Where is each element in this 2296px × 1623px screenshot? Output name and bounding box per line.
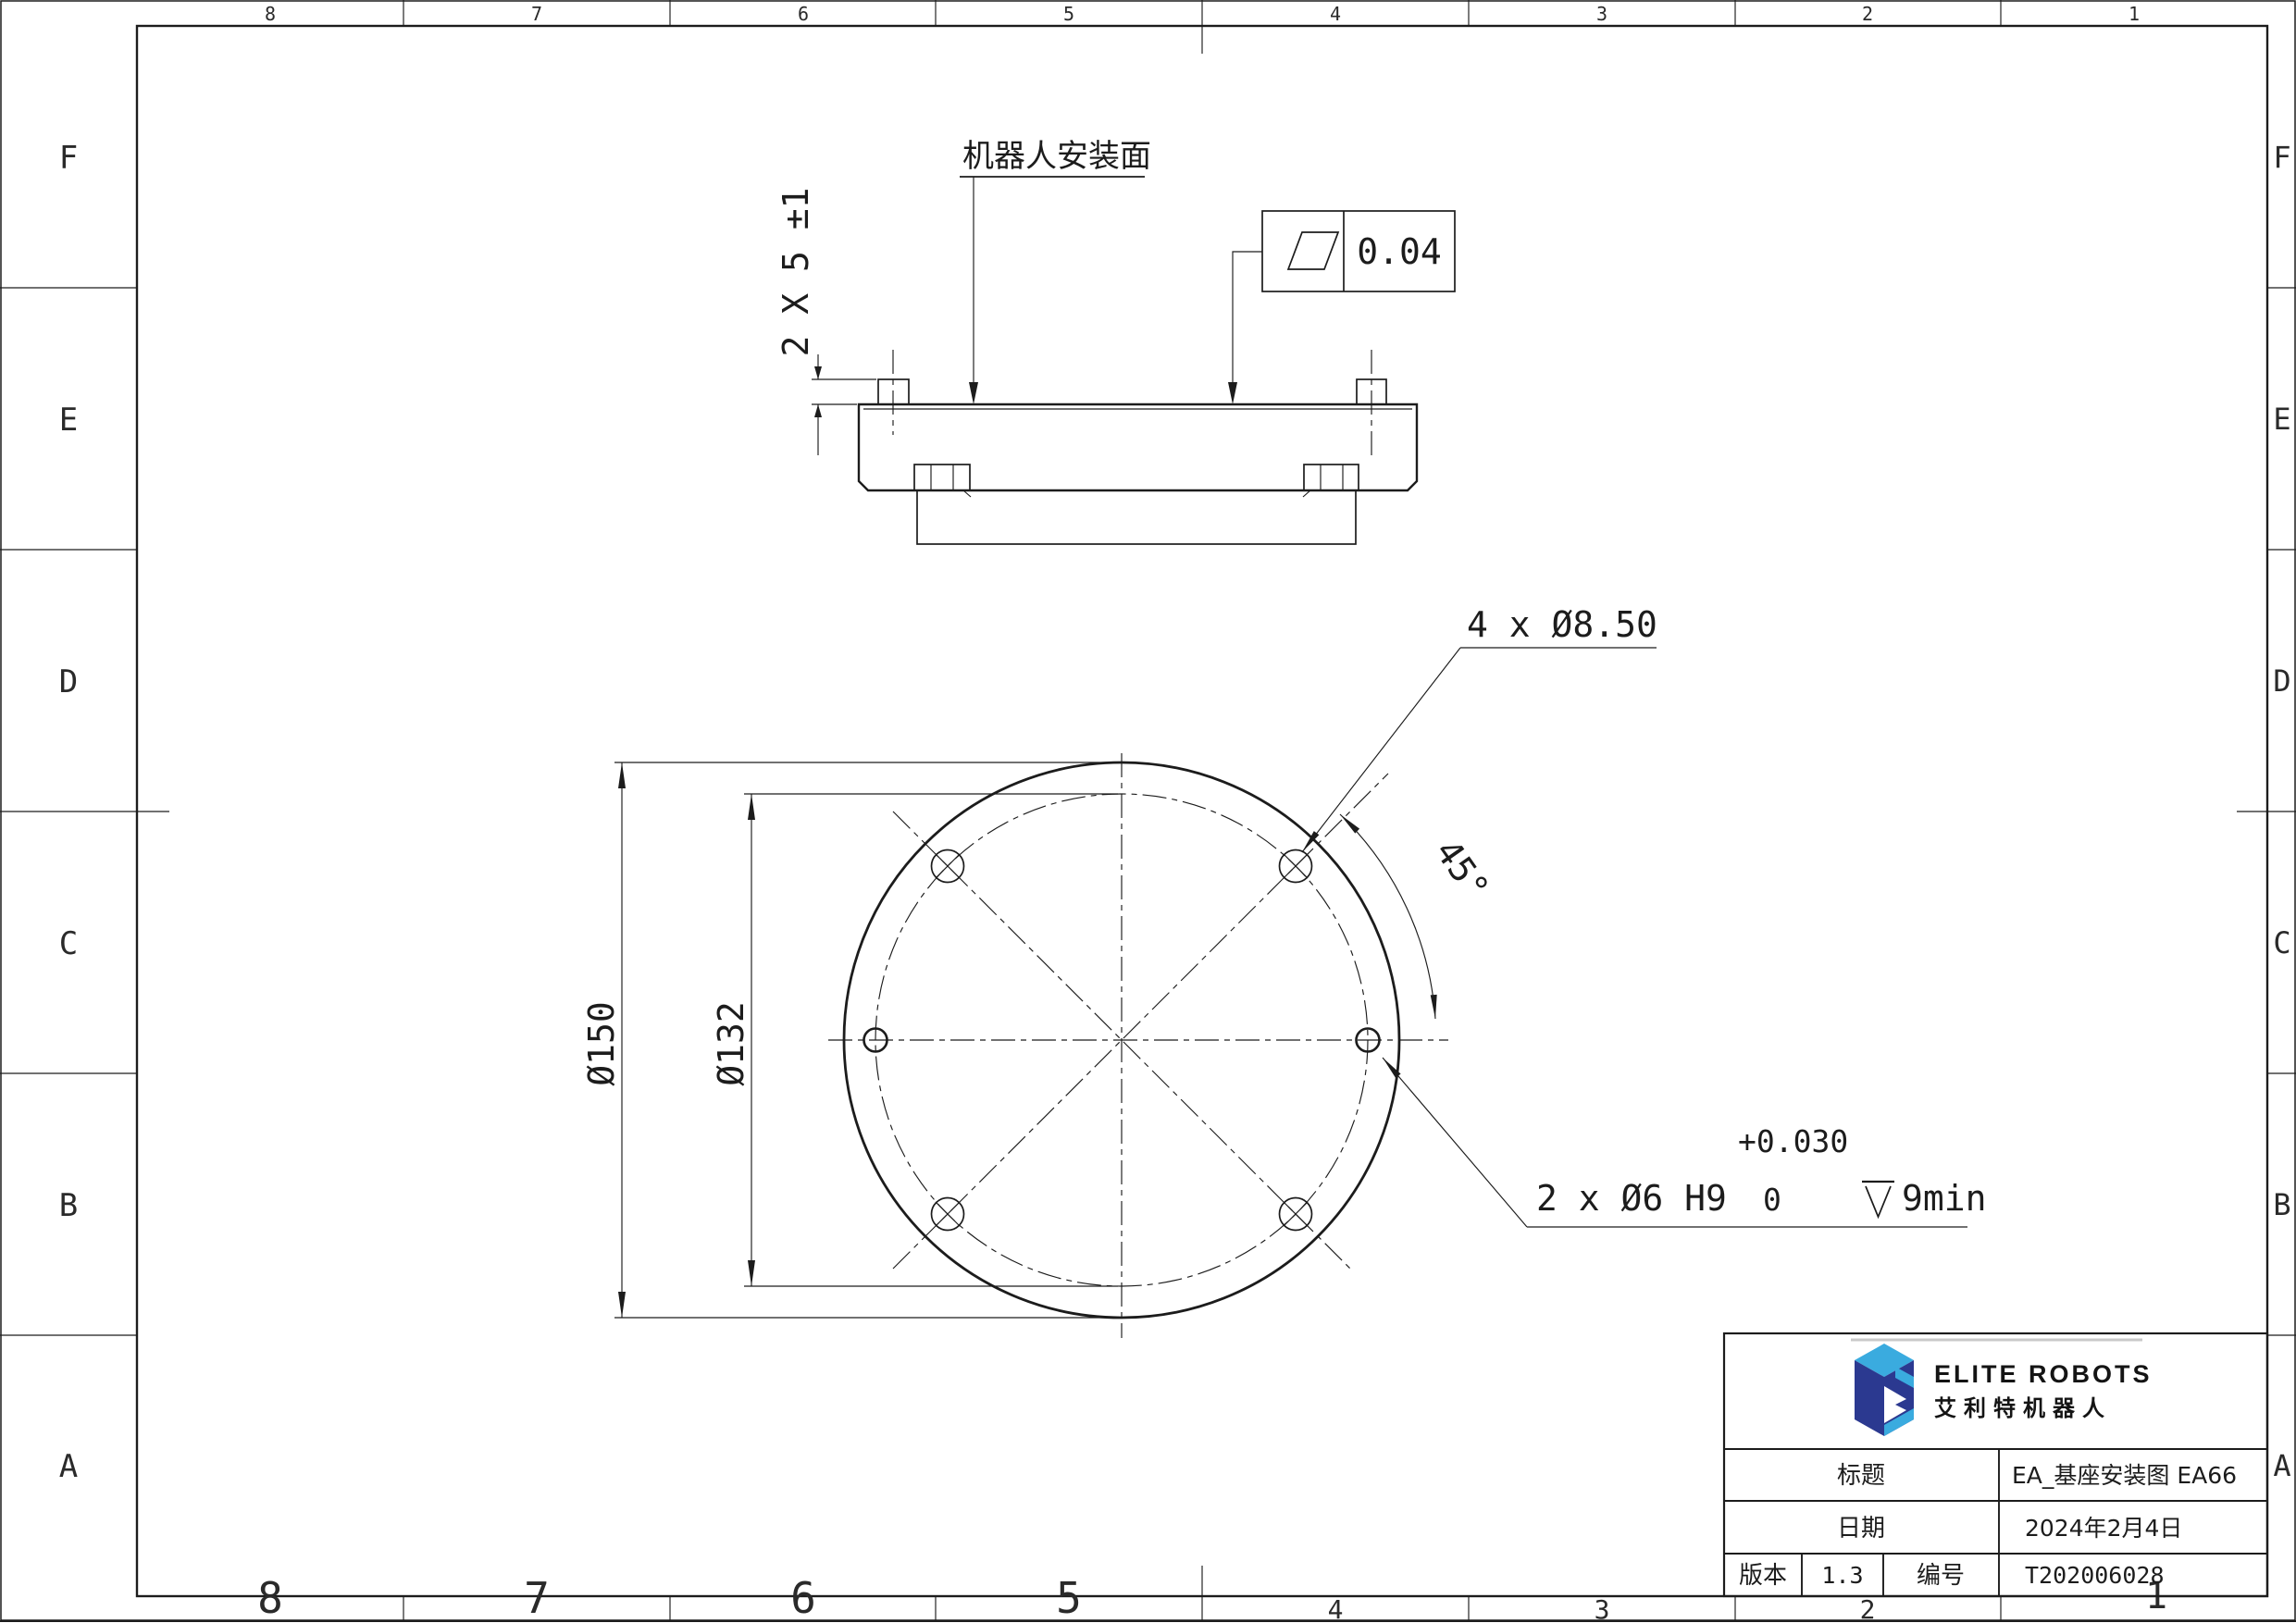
flatness-arrow	[1228, 382, 1237, 404]
elite-robots-logo-icon	[1855, 1344, 1914, 1436]
version-value: 1.3	[1821, 1562, 1863, 1589]
screw-head-left	[914, 465, 971, 497]
zone-col-label: 8	[257, 1573, 283, 1623]
date-value: 2024年2月4日	[2025, 1515, 2182, 1542]
drawing-canvas: 8 7 6 5 4 3 2 1 8 7 6 5 4 3 2 1 F E D C …	[0, 0, 2296, 1623]
number-value: T202006028	[2025, 1562, 2165, 1589]
zone-col-label: 1	[2128, 3, 2140, 25]
mount-hole-callout: 4 x Ø8.50	[1302, 604, 1657, 852]
flatness-frame: 0.04	[1228, 211, 1455, 404]
angle-arrow-upper	[1340, 814, 1359, 834]
zone-ticks-left	[0, 288, 169, 1335]
zone-col-label: 5	[1056, 1573, 1082, 1623]
dowel-callout-text: 2 x Ø6 H9	[1536, 1178, 1727, 1219]
zone-col-label: 8	[265, 3, 276, 25]
angle-arrow-lower	[1431, 995, 1437, 1019]
zone-col-label: 4	[1330, 3, 1341, 25]
dia150-arrow-bottom	[618, 1292, 626, 1318]
depth-symbol-icon	[1862, 1182, 1894, 1217]
top-view: Ø150 Ø132 4 x Ø8.50 45°	[581, 604, 1987, 1338]
pin-dim-arrow-lower	[814, 404, 822, 417]
zone-col-label: 7	[524, 1573, 550, 1623]
brand-name-en: ELITE ROBOTS	[1934, 1360, 2153, 1388]
zone-col-label: 6	[798, 3, 809, 25]
dowel-tolerance-upper: +0.030	[1738, 1123, 1848, 1159]
zone-labels-bottom: 8 7 6 5 4 3 2 1	[257, 1573, 2167, 1623]
zone-col-label: 3	[1595, 1594, 1610, 1623]
flatness-leader	[1233, 252, 1262, 401]
zone-row-label: C	[59, 925, 78, 962]
zone-row-label: A	[59, 1448, 78, 1485]
zone-row-label: F	[2273, 140, 2290, 175]
zone-row-label: B	[2273, 1187, 2290, 1222]
zone-row-label: C	[2273, 925, 2290, 960]
zone-row-label: A	[2273, 1448, 2290, 1483]
pedestal-outline	[917, 490, 1356, 544]
zone-col-label: 2	[1862, 3, 1873, 25]
pin-dim-extension-lines	[812, 379, 876, 404]
pin-dim-text: 2 X 5 ±1	[776, 187, 816, 356]
flatness-value: 0.04	[1357, 231, 1442, 272]
zone-row-label: D	[2273, 663, 2290, 699]
zone-col-label: 3	[1596, 3, 1607, 25]
zone-col-label: 2	[1860, 1594, 1876, 1623]
zone-row-label: F	[59, 140, 78, 177]
side-view: 机器人安装面 0.04 2 X 5 ±1	[776, 138, 1455, 544]
title-block: ELITE ROBOTS 艾利特机器人 标题 EA_基座安装图 EA66 日期 …	[1724, 1333, 2267, 1596]
drawing-sheet: 8 7 6 5 4 3 2 1 8 7 6 5 4 3 2 1 F E D C …	[0, 0, 2296, 1623]
flatness-icon	[1288, 232, 1338, 269]
dia132-text: Ø132	[711, 1001, 751, 1086]
zone-row-label: E	[59, 402, 78, 439]
zone-col-label: 6	[790, 1573, 816, 1623]
zone-col-label: 4	[1328, 1594, 1344, 1623]
date-label: 日期	[1837, 1515, 1885, 1542]
dia150-arrow-top	[618, 762, 626, 788]
mount-hole-leader	[1302, 648, 1657, 852]
mount-hole-callout-text: 4 x Ø8.50	[1467, 604, 1657, 645]
brand-name-cn: 艾利特机器人	[1934, 1395, 2112, 1421]
dia132-arrow-bottom	[748, 1260, 755, 1286]
dia150-text: Ø150	[581, 1001, 622, 1086]
dowel-tolerance-lower: 0	[1763, 1182, 1781, 1218]
dowel-depth-text: 9min	[1902, 1178, 1987, 1219]
zone-row-label: D	[59, 663, 78, 700]
zone-row-label: E	[2273, 402, 2290, 437]
depth-symbol-arrow	[1866, 1186, 1891, 1217]
mounting-surface-label: 机器人安装面	[962, 138, 1151, 175]
number-label: 编号	[1917, 1562, 1965, 1590]
dowel-callout: 2 x Ø6 H9 +0.030 0 9min	[1383, 1058, 1987, 1227]
pin-dimension: 2 X 5 ±1	[776, 187, 876, 455]
plate-outline	[859, 404, 1417, 490]
zone-col-label: 7	[531, 3, 542, 25]
screw-head-outline	[1304, 465, 1359, 490]
zone-col-label: 5	[1063, 3, 1074, 25]
angle-dimension: 45°	[1340, 814, 1507, 1019]
screw-head-detail	[931, 465, 971, 497]
dia132-arrow-top	[748, 794, 755, 820]
screw-head-detail	[1303, 465, 1343, 497]
screw-head-outline	[914, 465, 970, 490]
pin-dim-arrow-upper	[814, 366, 822, 379]
zone-labels-left: F E D C B A	[59, 140, 78, 1485]
version-label: 版本	[1739, 1562, 1787, 1590]
mounting-surface-arrow	[969, 382, 978, 404]
title-label: 标题	[1837, 1462, 1885, 1490]
title-value: EA_基座安装图 EA66	[2012, 1462, 2237, 1489]
zone-row-label: B	[59, 1187, 78, 1224]
screw-head-right	[1303, 465, 1359, 497]
